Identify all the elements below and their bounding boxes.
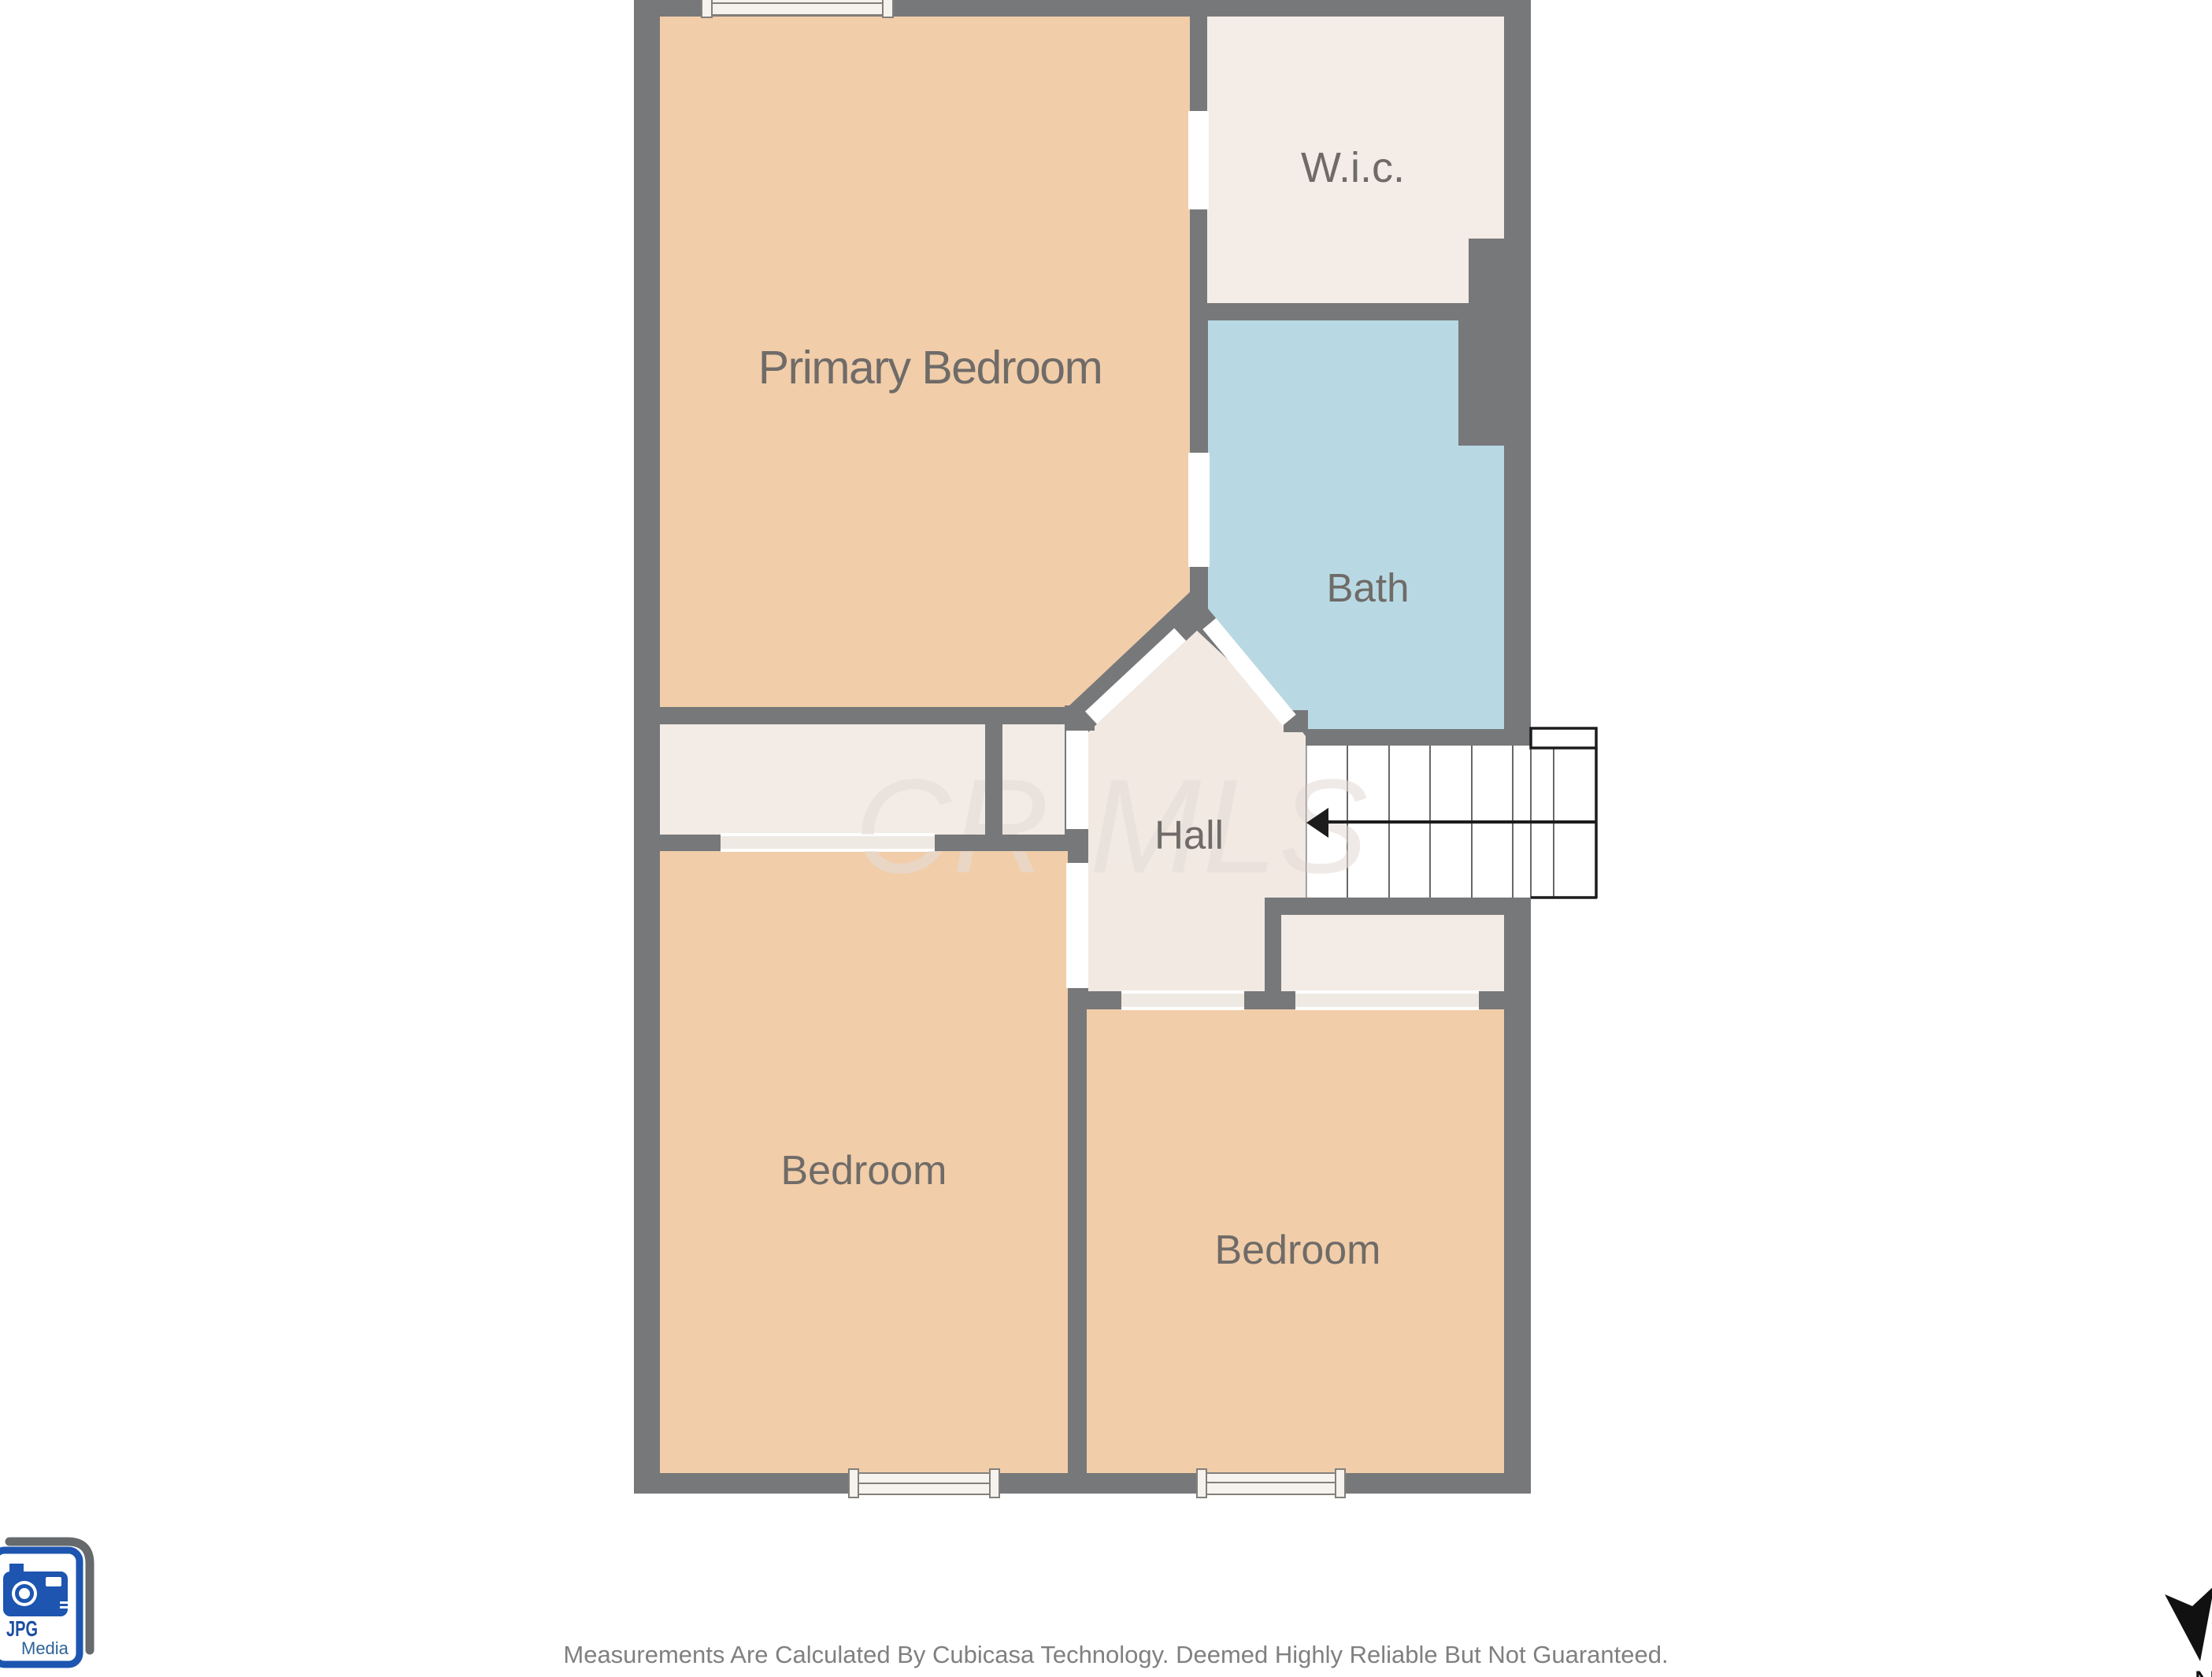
svg-text:Measurements Are Calculated By: Measurements Are Calculated By Cubicasa … (563, 1641, 1668, 1668)
svg-text:Bath: Bath (1327, 565, 1410, 610)
svg-text:Primary Bedroom: Primary Bedroom (758, 342, 1102, 394)
svg-text:Bedroom: Bedroom (1215, 1227, 1381, 1273)
svg-text:Hall: Hall (1154, 813, 1224, 857)
svg-text:CR MLS: CR MLS (854, 752, 1369, 901)
svg-text:N: N (2194, 1665, 2212, 1677)
svg-text:JPG: JPG (6, 1616, 38, 1641)
svg-text:Bedroom: Bedroom (781, 1148, 947, 1194)
svg-text:Media: Media (21, 1638, 69, 1658)
svg-text:W.i.c.: W.i.c. (1301, 144, 1405, 191)
